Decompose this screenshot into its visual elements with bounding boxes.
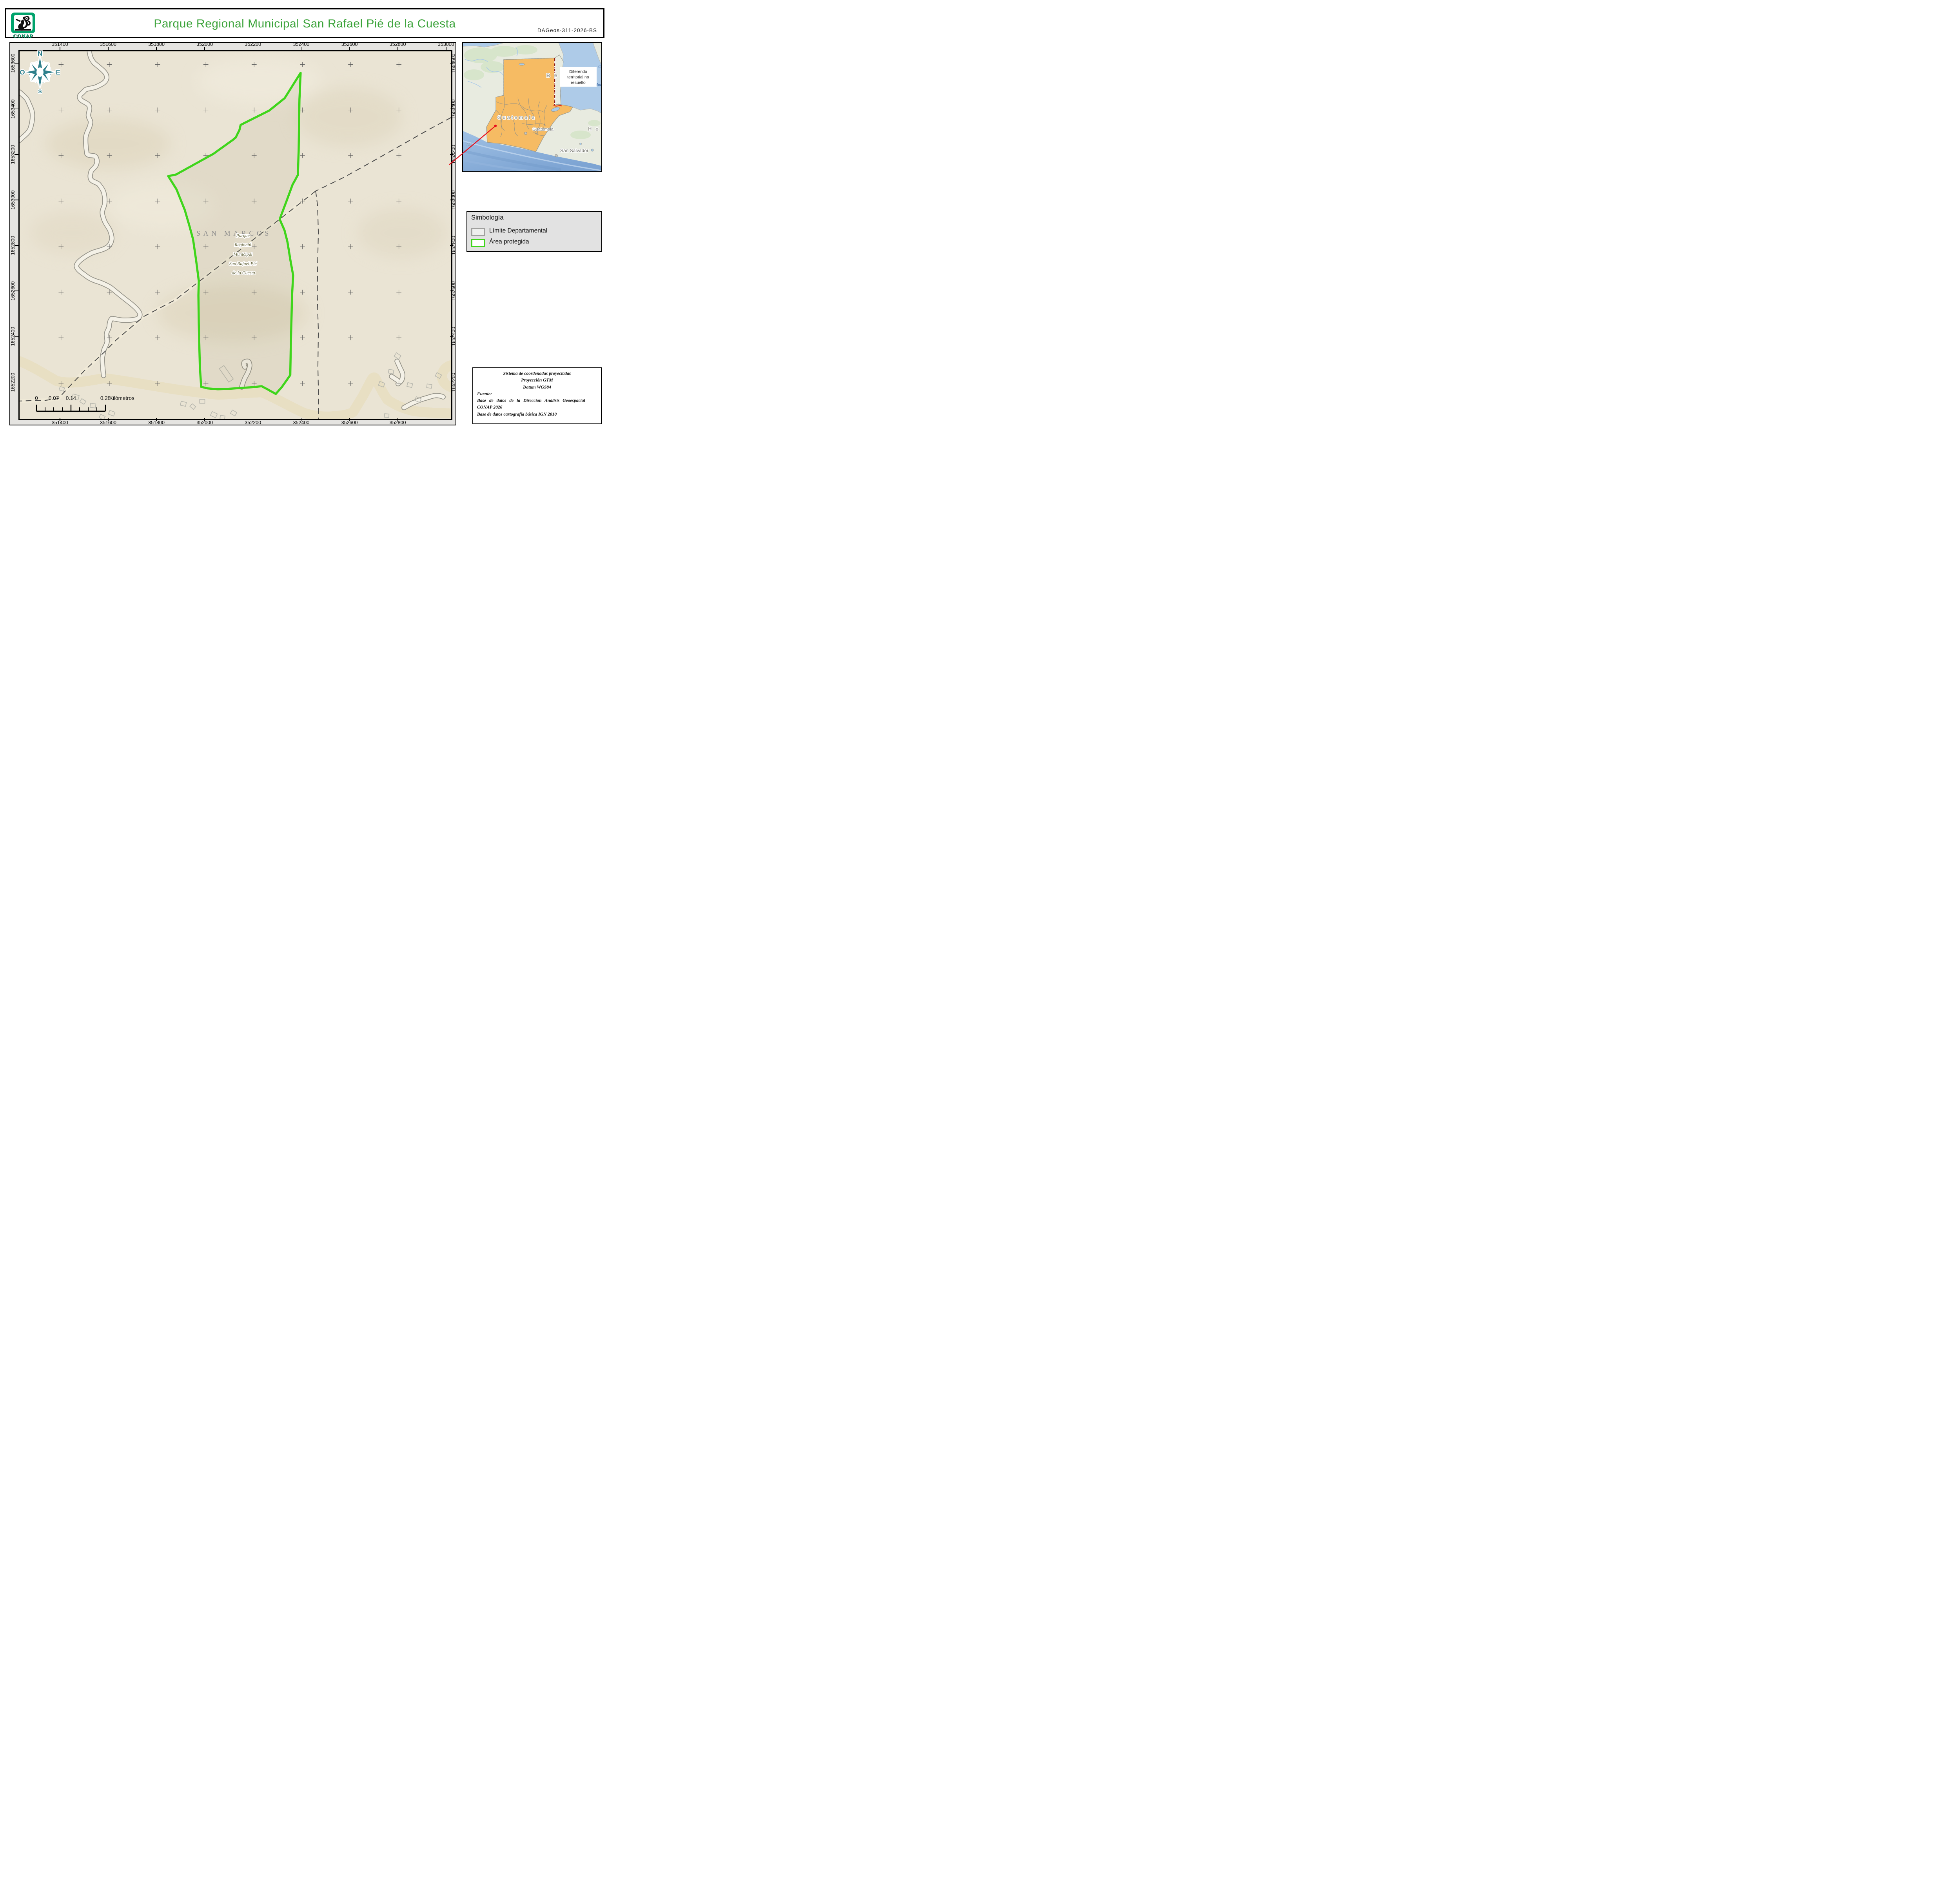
x-axis-tick-bottom <box>301 418 302 421</box>
header-bar: CONAP Parque Regional Municipal San Rafa… <box>5 8 604 38</box>
y-axis-label-left: 1653200 <box>10 145 16 164</box>
crs-projection: Proyección GTM <box>477 377 597 384</box>
y-axis-label-left: 1652800 <box>10 236 16 255</box>
legend: Simbología Límite Departamental Área pro… <box>466 211 602 252</box>
source-line-2: CONAP 2026 <box>477 404 597 411</box>
x-axis-label-top: 351800 <box>148 42 165 47</box>
y-axis-tick-left <box>15 245 18 246</box>
y-axis-tick-right <box>450 200 453 200</box>
san-salvador-label: San Salvador <box>560 148 588 153</box>
y-axis-label-left: 1652400 <box>10 327 16 346</box>
scale-value: 0.07 <box>49 395 59 401</box>
y-axis-label-left: 1652600 <box>10 282 16 301</box>
conap-logo-text: CONAP <box>8 33 38 39</box>
scale-value: 0.14 <box>66 395 76 401</box>
y-axis-tick-left <box>15 336 18 337</box>
honduras-partial-label: H o <box>588 126 600 132</box>
legend-item-label: Área protegida <box>489 238 529 245</box>
scale-bar: 00.070.140.28Kilómetros <box>34 395 160 413</box>
map-document: { "header": { "logo_text": "CONAP", "tit… <box>0 0 606 430</box>
source-heading: Fuente: <box>477 391 597 398</box>
source-line-3: Base de datos cartografía básica IGN 201… <box>477 411 597 418</box>
y-axis-tick-right <box>450 291 453 291</box>
y-axis-label-left: 1653400 <box>10 99 16 118</box>
y-axis-label-left: 1653000 <box>10 191 16 210</box>
y-axis-label-left: 1652200 <box>10 372 16 392</box>
x-axis-label-top: 353000 <box>438 42 454 47</box>
x-axis-tick-bottom <box>60 418 60 421</box>
legend-item-label: Límite Departamental <box>489 227 547 234</box>
x-axis-tick-bottom <box>156 418 157 421</box>
compass-o-label: O <box>20 69 25 76</box>
x-axis-label-top: 351400 <box>52 42 68 47</box>
guatemala-country-label: G u a t e m a l a <box>497 114 535 120</box>
x-axis-tick-bottom <box>204 418 205 421</box>
x-axis-tick-bottom <box>397 418 398 421</box>
x-axis-tick-top <box>204 47 205 50</box>
x-axis-label-top: 352600 <box>341 42 358 47</box>
y-axis-tick-right <box>450 382 453 383</box>
note-line-1: Diferendo <box>569 69 587 74</box>
x-axis-tick-top <box>108 47 109 50</box>
road-number-label: 721 <box>466 142 472 147</box>
y-axis-tick-left <box>15 291 18 291</box>
y-axis-tick-left <box>15 109 18 109</box>
x-axis-tick-top <box>253 47 254 50</box>
compass-n-label: N <box>38 50 42 57</box>
page-title: Parque Regional Municipal San Rafael Pié… <box>6 17 603 31</box>
y-axis-tick-left <box>15 200 18 200</box>
x-axis-label-top: 352200 <box>245 42 261 47</box>
source-line-1: Base de datos de la Dirección Análisis G… <box>477 398 597 404</box>
y-axis-tick-left <box>15 63 18 64</box>
water-label-gu: Gu <box>598 65 601 69</box>
departmental-limit-swatch <box>471 228 485 236</box>
y-axis-tick-left <box>15 154 18 155</box>
crs-datum: Datum WGS84 <box>477 384 597 391</box>
document-id: DAGeos-311-2026-BS <box>537 27 597 33</box>
main-map: SAN MARCOS Parque Regional Municipal San… <box>18 50 452 420</box>
guatemala-city-dot <box>524 132 527 134</box>
x-axis-tick-top <box>156 47 157 50</box>
compass-star-icon <box>26 58 54 87</box>
belize-partial-label: B e <box>546 72 559 78</box>
y-axis-label-left: 1653600 <box>10 54 16 73</box>
x-axis-tick-bottom <box>349 418 350 421</box>
protected-area-swatch <box>471 239 485 247</box>
y-axis-tick-right <box>450 154 453 155</box>
credits-box: Sistema de coordenadas proyectadas Proye… <box>472 367 602 424</box>
scale-value: 0 <box>35 395 38 401</box>
x-axis-tick-top <box>301 47 302 50</box>
compass-e-label: E <box>56 69 60 76</box>
y-axis-tick-right <box>450 63 453 64</box>
compass-s-label: S <box>38 88 42 94</box>
scale-unit: Kilómetros <box>109 395 134 401</box>
crs-title: Sistema de coordenadas proyectadas <box>477 371 597 377</box>
x-axis-tick-bottom <box>253 418 254 421</box>
x-axis-tick-bottom <box>108 418 109 421</box>
note-line-2: territorial no <box>567 75 589 80</box>
x-axis-tick-top <box>446 47 446 50</box>
x-axis-label-top: 351600 <box>100 42 116 47</box>
y-axis-tick-right <box>450 109 453 109</box>
san-salvador-dot <box>555 154 557 157</box>
legend-title: Simbología <box>471 214 504 222</box>
y-axis-tick-right <box>450 245 453 246</box>
x-axis-tick-top <box>397 47 398 50</box>
territorial-dispute-note: Diferendo territorial no resuelto <box>560 67 597 87</box>
x-axis-label-top: 352400 <box>293 42 310 47</box>
x-axis-label-top: 352000 <box>196 42 213 47</box>
x-axis-label-top: 352800 <box>390 42 406 47</box>
compass-rose: N E S O <box>20 48 60 95</box>
y-axis-tick-right <box>450 336 453 337</box>
x-axis-tick-top <box>349 47 350 50</box>
note-line-3: resuelto <box>571 80 586 85</box>
y-axis-tick-left <box>15 382 18 383</box>
department-label: SAN MARCOS <box>196 229 272 237</box>
guatemala-city-label: Guatemala <box>532 127 554 132</box>
inset-locator-map: B e G u a t e m a l a Guatemala San Salv… <box>462 42 602 172</box>
main-map-canvas: SAN MARCOS Parque Regional Municipal San… <box>20 51 451 419</box>
